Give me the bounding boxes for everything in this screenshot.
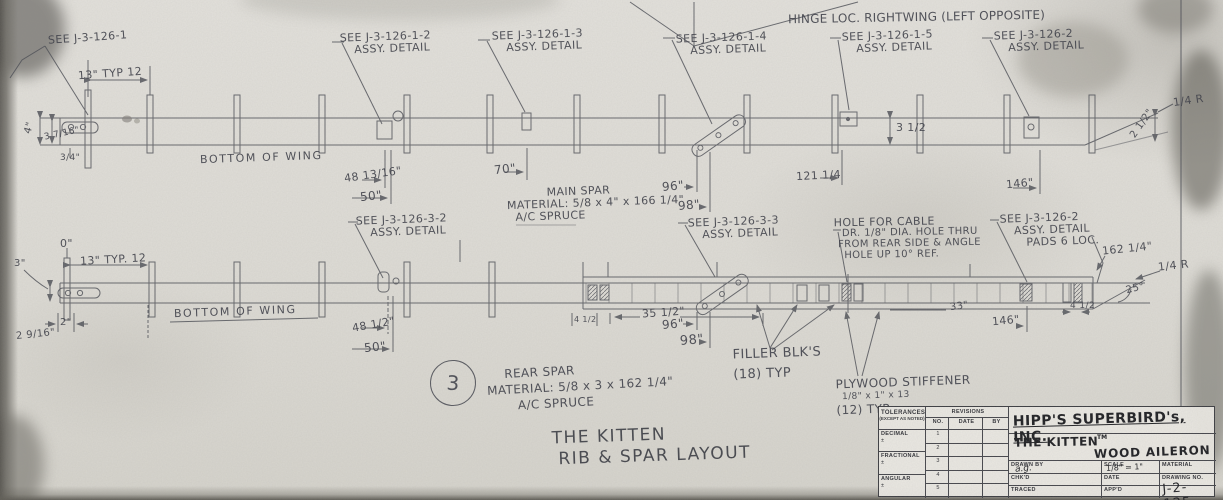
traced-cell: TRACED [1009,486,1102,498]
company-name-cell: HIPP'S SUPERBIRD's, INC. [1009,407,1216,434]
product-part-cell: THE KITTEN TM WOOD AILERON [1009,434,1216,461]
bottom-callout-pads: SEE J-3-126-2ASSY. DETAIL PADS 6 LOC. [999,210,1099,249]
rev-row-3-by [983,457,1009,471]
bottom-dim-2: 2" [60,317,72,329]
date-cell: DATE [1102,474,1160,486]
material-cell: MATERIAL [1160,461,1216,474]
scale-value: 1/8" = 1" [1106,462,1144,473]
revisions-header-cell: REVISIONS [926,407,1009,418]
top-dim-121-1-4: 121 1/4 [796,169,842,183]
bottom-callout-3-3: SEE J-3-126-3-3ASSY. DETAIL [688,214,780,241]
chkd-cell: CHK'D [1009,474,1102,486]
blueprint-sheet: SEE J-3-126-1 13" TYP 12 SEE J-3-126-1-2… [0,0,1223,500]
top-dim-3-1-2: 3 1/2 [896,122,926,134]
rev-row-1 [949,430,983,444]
bottom-callout-3-2: SEE J-3-126-3-2ASSY. DETAIL [356,212,448,239]
rev-row-5 [949,484,983,498]
rev-row-2-by [983,444,1009,457]
rev-row-2-no: 2 [926,444,949,457]
rev-row-4 [949,471,983,484]
top-dim-98: 98" [678,198,701,212]
tolerance-row-fractional: FRACTIONAL ± [879,452,926,475]
product-trademark: TM [1097,434,1107,441]
top-dim-70: 70" [493,162,516,176]
top-callout-1-4: SEE J-3-126-1-4ASSY. DETAIL [676,30,768,57]
bottom-dim-50: 50" [363,340,386,354]
tolerances-header-cell: TOLERANCES (EXCEPT AS NOTED) [879,407,926,430]
bottom-dim-146: 146" [992,314,1021,328]
rear-spar-note: REAR SPAR MATERIAL: 5/8 x 3 x 162 1/4" A… [486,357,675,415]
filler-blks-note: FILLER BLK'S (18) TYP [732,342,822,385]
bottom-dim-4-1-2-right: 4 1/2 [1070,300,1095,312]
top-callout-2: SEE J-3-126-2ASSY. DETAIL [994,27,1085,54]
title-block: TOLERANCES (EXCEPT AS NOTED) DECIMAL ± F… [878,406,1215,497]
top-callout-1-2: SEE J-3-126-1-2ASSY. DETAIL [340,29,432,56]
top-dim-146: 146" [1006,177,1035,191]
top-dim-50: 50" [359,189,382,203]
rev-row-4-no: 4 [926,471,949,484]
top-callout-1-3: SEE J-3-126-1-3ASSY. DETAIL [492,27,584,54]
rev-row-1-by [983,430,1009,444]
top-callout-1-5: SEE J-3-126-1-5ASSY. DETAIL [842,28,934,55]
scale-cell: SCALE 1/8" = 1" [1102,461,1160,474]
drawing-no-value: J-2-125 [1162,478,1215,500]
tolerance-row-angular: ANGULAR ± [879,475,926,498]
bottom-zero-ref: 0" [60,238,73,250]
bottom-dim-98: 98" [680,334,705,348]
rev-row-5-by [983,484,1009,498]
rev-col-no: NO. [926,418,949,430]
drawn-by-signature: a.g. [1015,463,1033,474]
appd-cell: APP'D [1102,486,1160,498]
sheet-title: THE KITTEN RIB & SPAR LAYOUT [551,422,751,471]
bottom-dim-33: 33" [949,300,969,314]
bottom-dim-3: 3" [14,258,26,270]
rev-row-5-no: 5 [926,484,949,498]
drawn-by-cell: DRAWN BY a.g. [1009,461,1102,474]
bottom-dim-96: 96" [662,317,685,331]
rev-row-3 [949,457,983,471]
top-dim-96: 96" [662,179,685,193]
part-name: WOOD AILERON [1093,443,1210,461]
rev-col-date: DATE [949,418,983,430]
top-dim-3-4: 3/4" [60,152,80,164]
rev-row-1-no: 1 [926,430,949,444]
rev-row-2 [949,444,983,457]
main-spar-note: MAIN SPAR MATERIAL: 5/8 x 4" x 166 1/4" … [506,182,684,224]
tolerance-row-decimal: DECIMAL ± [879,430,926,452]
product-name: THE KITTEN [1014,434,1098,449]
rev-row-3-no: 3 [926,457,949,471]
bottom-dim-4-1-2-left: 4 1/2 [574,314,597,326]
hole-for-cable-note: HOLE FOR CABLE DR. 1/8" DIA. HOLE THRU F… [834,215,982,262]
rev-row-4-by [983,471,1009,484]
rev-col-by: BY [983,418,1009,430]
